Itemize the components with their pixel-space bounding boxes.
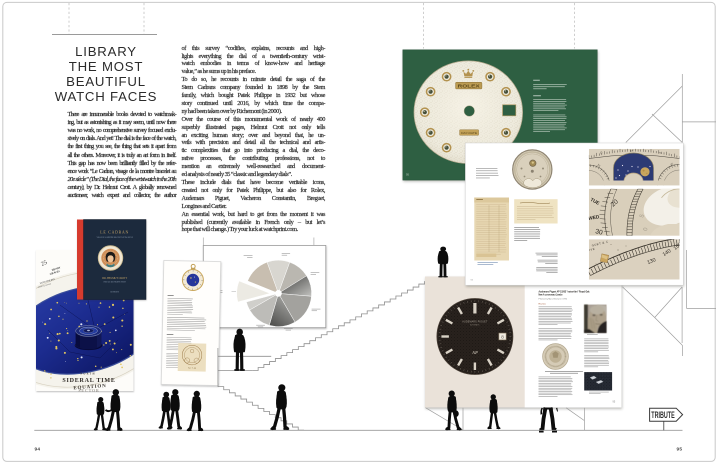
- svg-text:NORTH: NORTH: [80, 372, 95, 375]
- svg-text:AP: AP: [471, 350, 478, 355]
- svg-text:DAY-DATE: DAY-DATE: [461, 131, 477, 135]
- svg-text:TRIBUTE: TRIBUTE: [651, 410, 675, 421]
- svg-text:EDITIONS: EDITIONS: [111, 292, 119, 294]
- svg-text:AUDEMARS PIGUET: AUDEMARS PIGUET: [462, 320, 488, 323]
- svg-text:ROLEX: ROLEX: [458, 83, 480, 88]
- svg-text:New A-cosmonaut Jumbo: New A-cosmonaut Jumbo: [539, 293, 563, 297]
- svg-text:DR. HELMUT CROTT: DR. HELMUT CROTT: [102, 277, 127, 280]
- svg-text:Review: Review: [539, 304, 547, 306]
- svg-text:95: 95: [677, 447, 683, 453]
- svg-text:SECTOR: SECTOR: [78, 388, 99, 393]
- svg-text:LE CADRAN: LE CADRAN: [100, 230, 129, 234]
- svg-text:Photos by Marc Bruhat in 1992: Photos by Marc Bruhat in 1992: [539, 297, 568, 300]
- svg-text:N= 7 44: N= 7 44: [188, 367, 197, 370]
- svg-text:8: 8: [501, 334, 504, 339]
- svg-text:SIDERAL TIME: SIDERAL TIME: [62, 378, 115, 384]
- svg-text:94: 94: [35, 447, 41, 453]
